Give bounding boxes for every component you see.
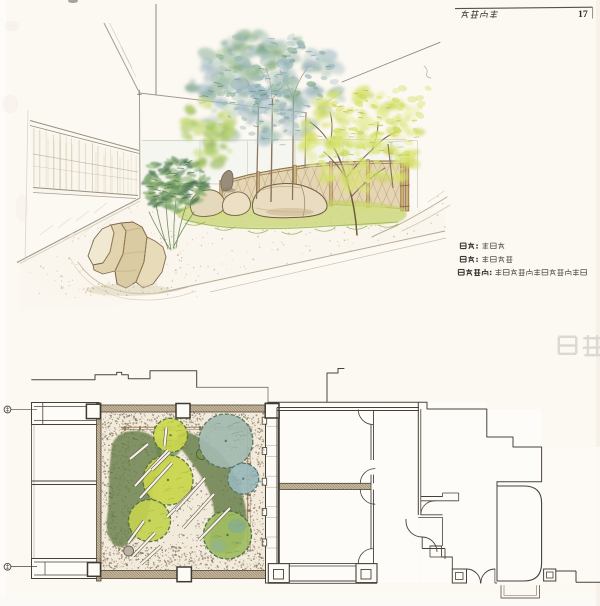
svg-text:17: 17	[578, 9, 588, 20]
